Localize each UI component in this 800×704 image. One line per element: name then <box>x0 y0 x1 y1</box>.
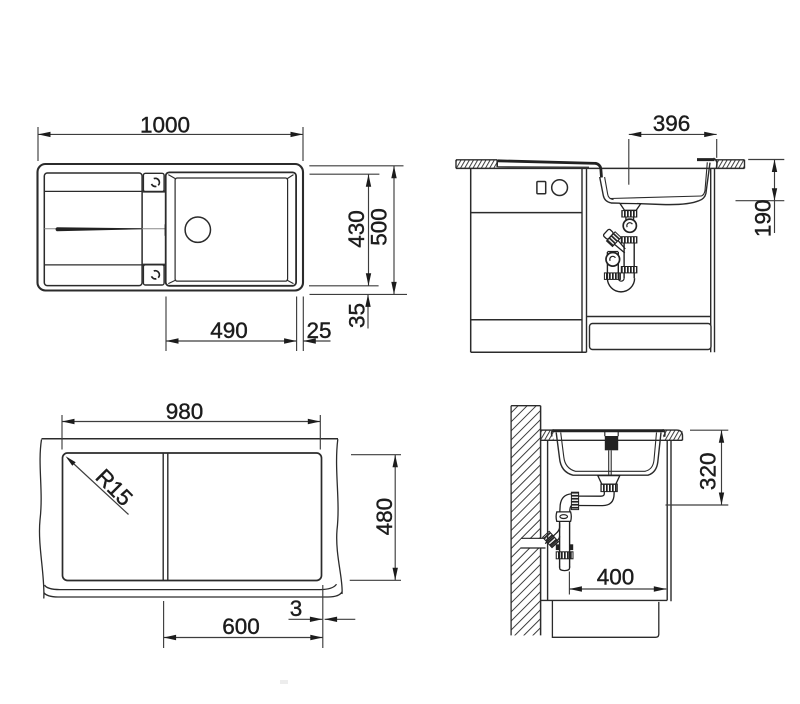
svg-text:600: 600 <box>222 614 260 639</box>
svg-text:400: 400 <box>597 565 635 590</box>
svg-text:500: 500 <box>367 208 392 246</box>
svg-text:35: 35 <box>345 303 370 328</box>
svg-text:480: 480 <box>372 498 397 536</box>
svg-text:490: 490 <box>210 318 248 343</box>
svg-text:1000: 1000 <box>140 112 190 137</box>
svg-text:320: 320 <box>696 453 721 491</box>
svg-text:3: 3 <box>290 596 303 621</box>
svg-text:430: 430 <box>344 210 369 248</box>
svg-text:190: 190 <box>751 200 776 238</box>
svg-text:396: 396 <box>653 111 691 136</box>
svg-text:980: 980 <box>166 399 204 424</box>
svg-text:25: 25 <box>306 318 331 343</box>
